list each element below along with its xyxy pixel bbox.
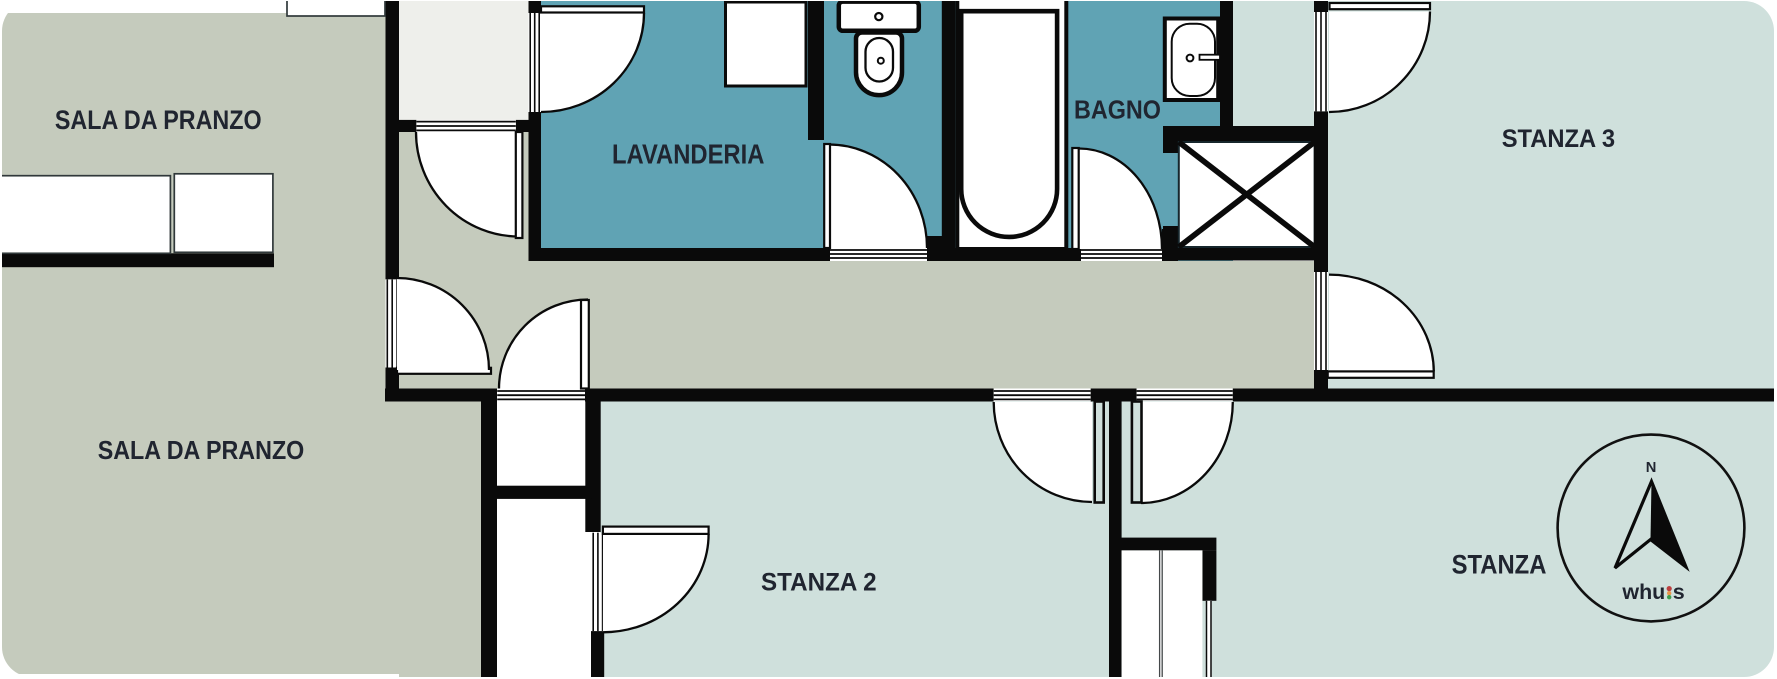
svg-text:s: s [1673,580,1685,604]
svg-text:SALA DA PRANZO: SALA DA PRANZO [55,104,262,135]
svg-text:STANZA 3: STANZA 3 [1502,125,1615,153]
svg-text:LAVANDERIA: LAVANDERIA [612,139,764,170]
svg-text:N: N [1646,460,1657,476]
svg-text:BAGNO: BAGNO [1074,94,1161,124]
svg-text:whu: whu [1621,580,1665,604]
svg-text:STANZA 2: STANZA 2 [761,568,877,596]
svg-text:STANZA: STANZA [1452,548,1547,579]
svg-text:SALA DA PRANZO: SALA DA PRANZO [98,437,305,465]
